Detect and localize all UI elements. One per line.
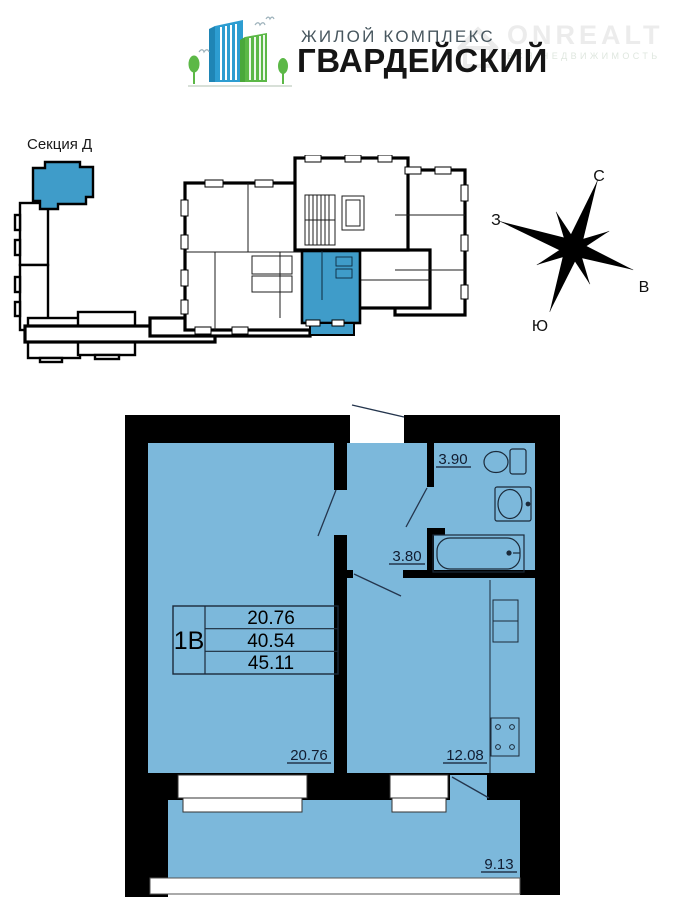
entry-door (352, 405, 404, 417)
complex-logo-icon (185, 10, 295, 105)
compass-rose: С З В Ю (478, 156, 668, 341)
logo-blue-building (215, 20, 243, 82)
section-label: Секция Д (27, 136, 92, 153)
logo-blue-side (209, 26, 215, 82)
overview-stair-core (295, 158, 408, 250)
total-with-balcony-value: 45.11 (248, 653, 294, 674)
logo-green-side (240, 37, 245, 82)
compass-north-label: С (593, 168, 605, 185)
floorplan-page: ONREALT ВСЯ НЕДВИЖИМОСТЬ (0, 0, 678, 910)
balcony-area-label: 9.13 (484, 856, 513, 873)
living-room-window (178, 775, 307, 798)
total-area-value: 40.54 (247, 631, 295, 652)
complex-name: ГВАРДЕЙСКИЙ (297, 42, 548, 80)
living-area-label: 20.76 (290, 747, 328, 764)
wc-area-label: 3.90 (438, 451, 467, 468)
hall-area-label: 3.80 (392, 548, 421, 565)
apartment-plan[interactable]: 1В 20.76 40.54 45.11 3.90 3.80 20.76 12.… (125, 403, 562, 908)
living-area-value: 20.76 (247, 608, 295, 629)
apartment-type-label: 1В (174, 627, 205, 655)
compass-south-label: Ю (532, 318, 548, 335)
compass-west-label: З (491, 212, 501, 229)
kitchen-window (390, 775, 448, 798)
floor-overview-plan (20, 155, 470, 350)
compass-east-label: В (639, 279, 650, 296)
kitchen-area-label: 12.08 (446, 747, 484, 764)
balcony-railing (150, 878, 520, 894)
